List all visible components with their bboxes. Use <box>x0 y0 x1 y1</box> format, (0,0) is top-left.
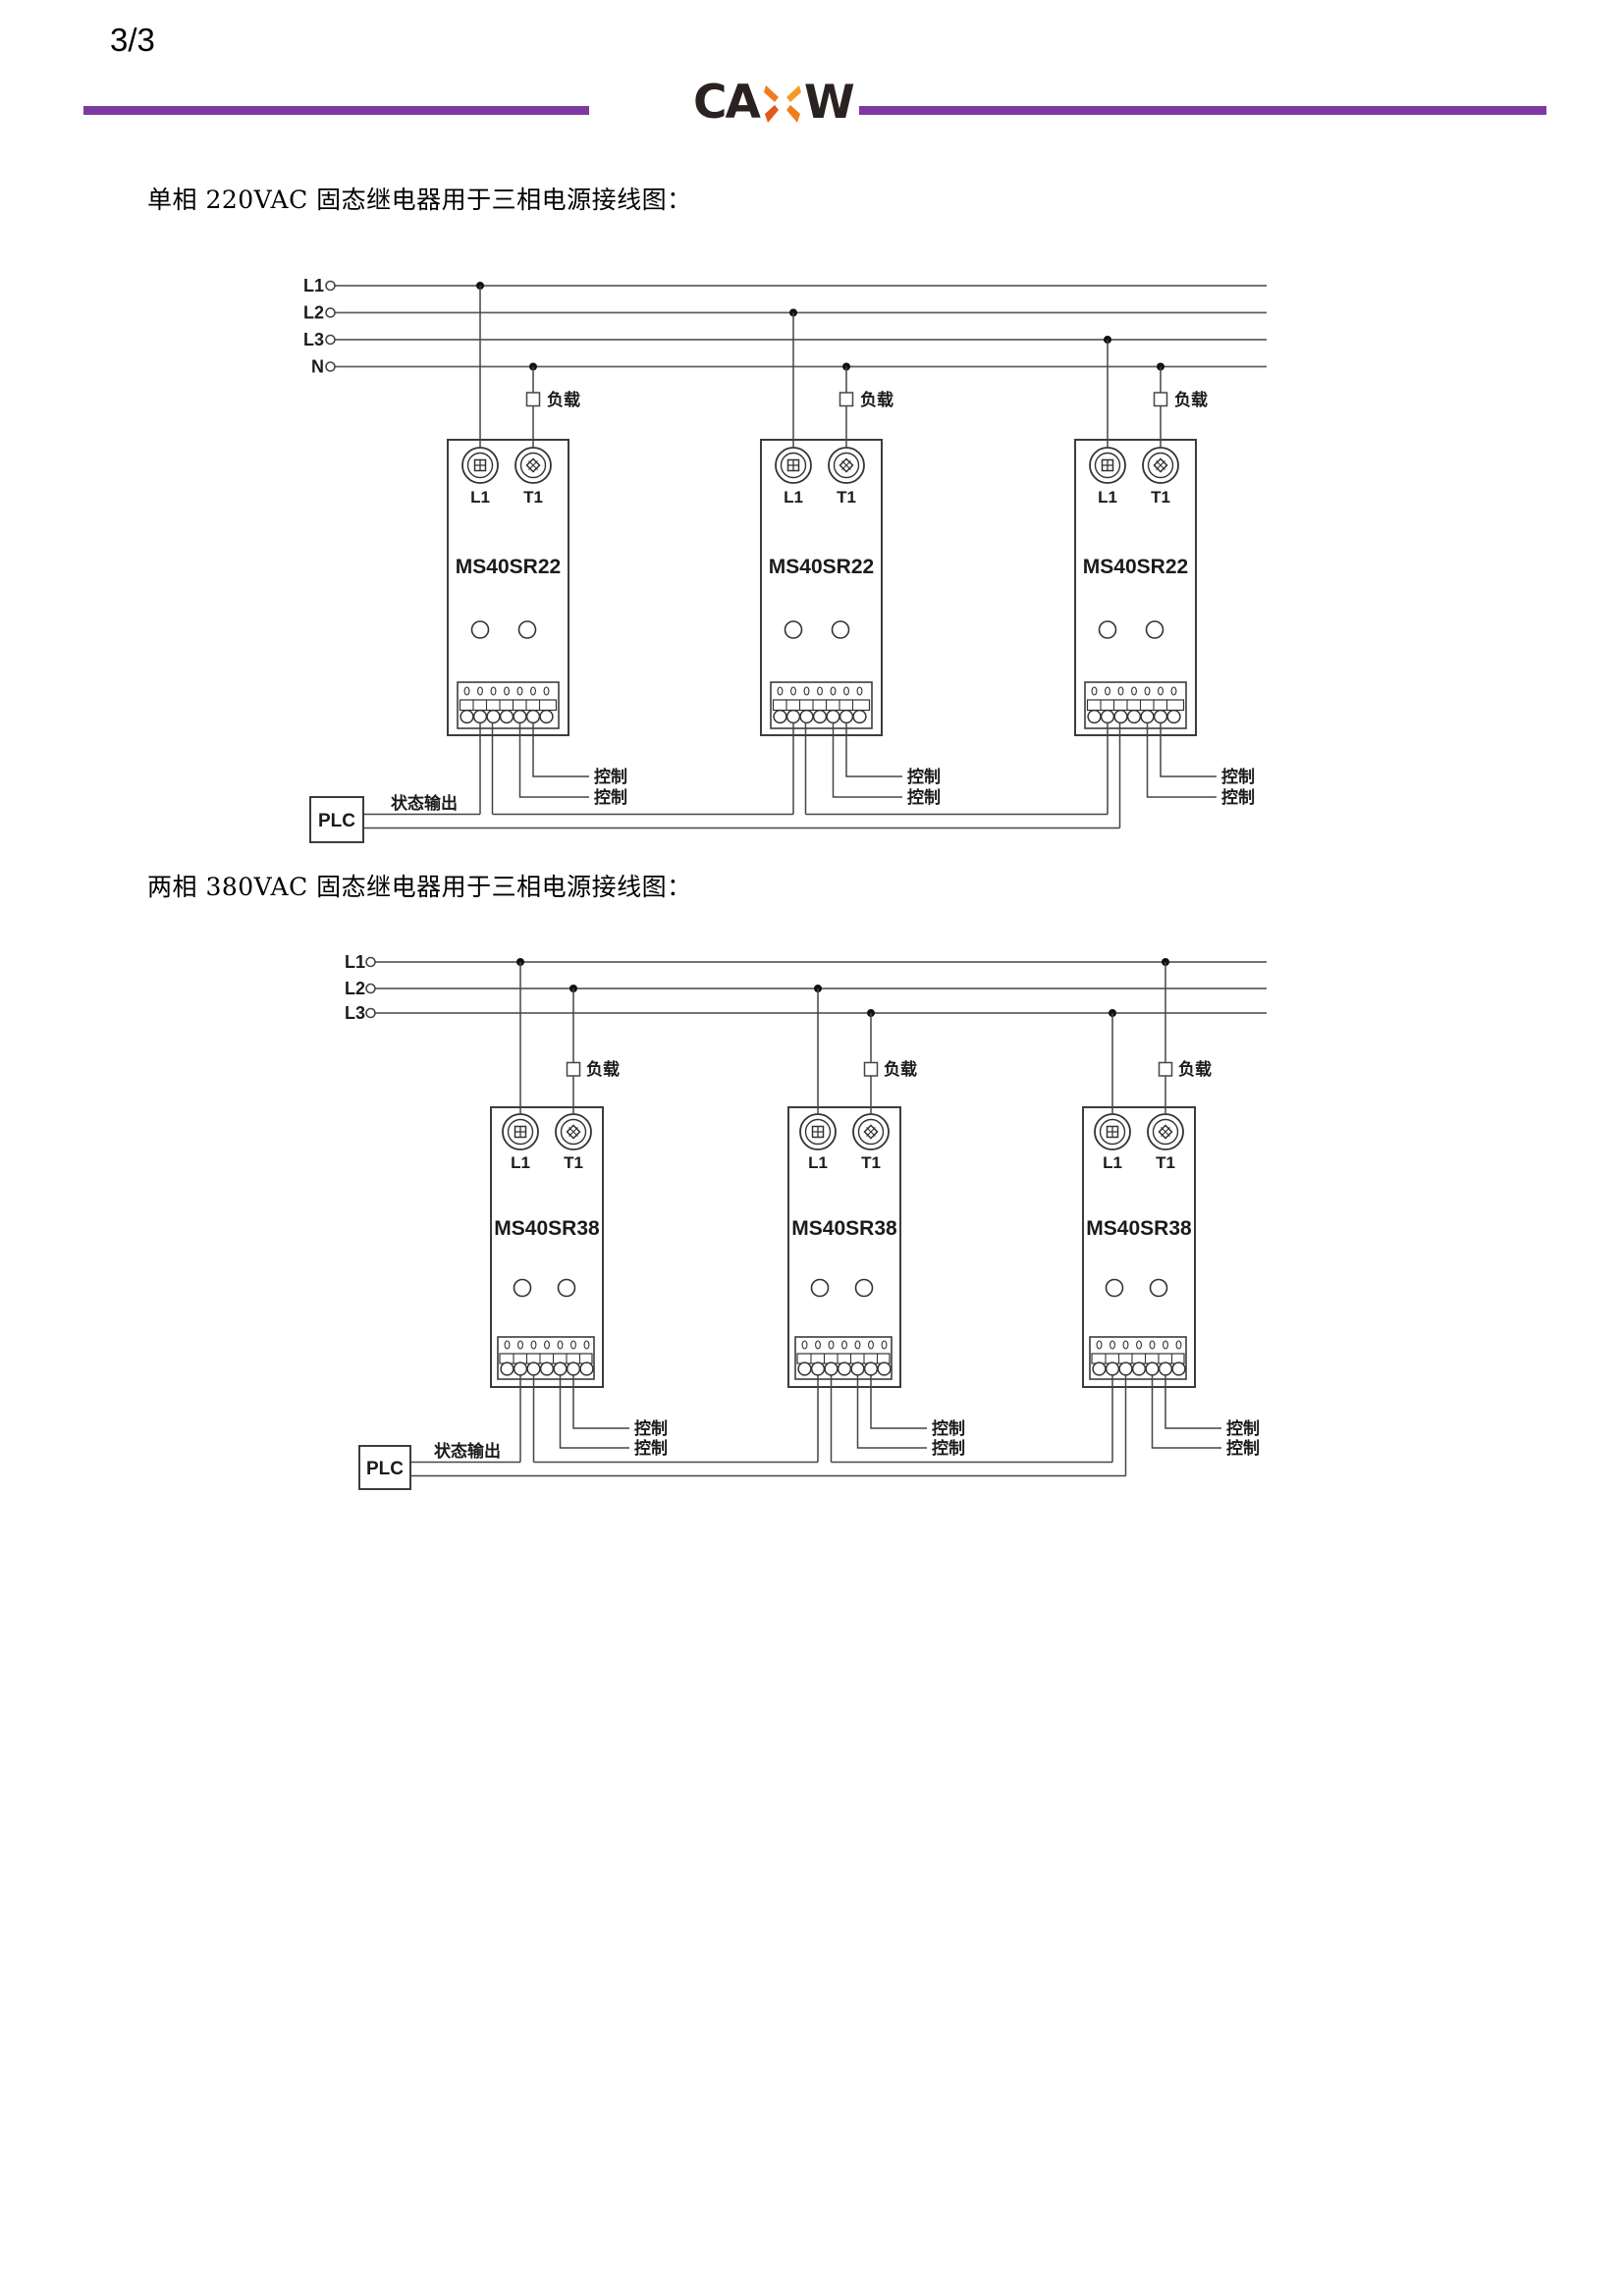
control-label: 控制 <box>634 1418 668 1438</box>
relay-module-3 <box>1075 440 1196 735</box>
bus-terminals <box>326 282 335 372</box>
control-label: 控制 <box>932 1438 965 1458</box>
terminal-label-t1: T1 <box>837 488 856 507</box>
control-label: 控制 <box>1221 787 1255 807</box>
load-symbol <box>1155 393 1167 406</box>
bus-label-l3: L3 <box>303 330 324 349</box>
control-and-status-wires <box>410 1375 1221 1476</box>
model-label: MS40SR38 <box>494 1217 600 1240</box>
control-label: 控制 <box>594 787 627 807</box>
plc-label: PLC <box>318 811 355 831</box>
terminal-label-t1: T1 <box>1151 488 1170 507</box>
load-label: 负载 <box>586 1059 620 1079</box>
relay-module-1 <box>491 1107 603 1387</box>
terminal-label-l1: L1 <box>784 488 803 507</box>
status-output-label: 状态输出 <box>434 1441 501 1461</box>
load-label: 负载 <box>1178 1059 1212 1079</box>
relay-module-3 <box>1083 1107 1195 1387</box>
control-label: 控制 <box>594 767 627 786</box>
load-symbol <box>840 393 853 406</box>
relay-module-2 <box>788 1107 900 1387</box>
power-wires <box>520 962 1172 1114</box>
terminal-label-t1: T1 <box>523 488 543 507</box>
bus-label-l2: L2 <box>303 303 324 323</box>
bus-label-l1: L1 <box>345 952 365 972</box>
terminal-label-t1: T1 <box>564 1153 583 1172</box>
load-symbol <box>527 393 540 406</box>
control-label: 控制 <box>1226 1438 1260 1458</box>
plc-label: PLC <box>366 1459 404 1479</box>
junction-dots <box>516 958 1169 1017</box>
load-label: 负载 <box>884 1059 917 1079</box>
terminal-label-l1: L1 <box>1103 1153 1122 1172</box>
model-label: MS40SR22 <box>769 556 874 578</box>
terminal-label-l1: L1 <box>808 1153 828 1172</box>
document-page: 3/3 CA W 单相 220VAC 固态继电器用于三相电源接线图： 两相 38… <box>0 0 1624 2296</box>
terminal-label-t1: T1 <box>861 1153 881 1172</box>
terminal-label-t1: T1 <box>1156 1153 1175 1172</box>
control-label: 控制 <box>1226 1418 1260 1438</box>
wiring-diagrams-svg: L1 L2 L3 N 负载 负载 负载 <box>0 0 1624 2296</box>
control-and-status-wires <box>363 722 1217 828</box>
terminal-label-l1: L1 <box>470 488 490 507</box>
control-label: 控制 <box>1221 767 1255 786</box>
bus-lines <box>335 286 1267 367</box>
control-label: 控制 <box>932 1418 965 1438</box>
control-label: 控制 <box>907 767 941 786</box>
load-label: 负载 <box>547 390 580 409</box>
model-label: MS40SR38 <box>1086 1217 1192 1240</box>
model-label: MS40SR22 <box>1083 556 1188 578</box>
load-label: 负载 <box>860 390 893 409</box>
terminal-label-l1: L1 <box>1098 488 1117 507</box>
diagram2: L1 L2 L3 负载 负载 负载 <box>345 952 1267 1489</box>
junction-dots <box>476 282 1164 371</box>
load-symbol <box>1160 1063 1172 1077</box>
bus-label-l3: L3 <box>345 1003 365 1023</box>
bus-label-l2: L2 <box>345 979 365 998</box>
diagram1: L1 L2 L3 N 负载 负载 负载 <box>303 276 1267 842</box>
control-label: 控制 <box>634 1438 668 1458</box>
model-label: MS40SR38 <box>791 1217 897 1240</box>
load-symbol <box>568 1063 580 1077</box>
relay-module-2 <box>761 440 882 735</box>
bus-label-l1: L1 <box>303 276 324 295</box>
relay-module-1 <box>448 440 568 735</box>
model-label: MS40SR22 <box>456 556 561 578</box>
control-label: 控制 <box>907 787 941 807</box>
terminal-label-l1: L1 <box>511 1153 530 1172</box>
load-label: 负载 <box>1174 390 1208 409</box>
status-output-label: 状态输出 <box>391 793 458 813</box>
bus-terminals <box>366 958 375 1018</box>
load-symbol <box>865 1063 878 1077</box>
bus-label-n: N <box>311 357 324 377</box>
